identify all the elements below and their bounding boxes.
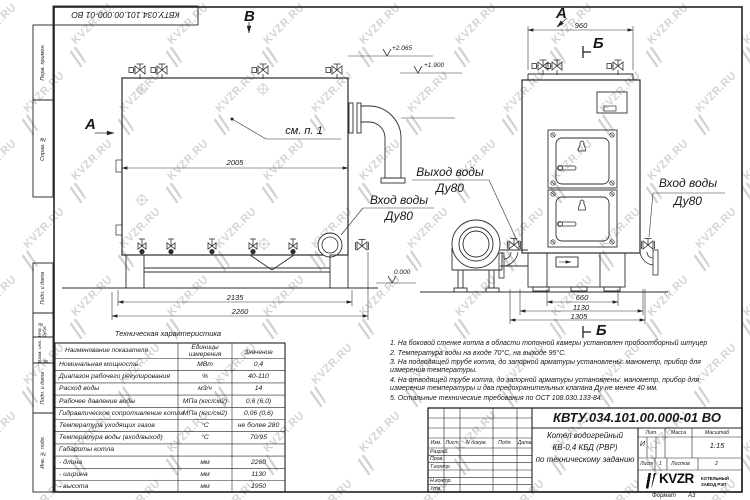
table-cell: мм [179,457,231,469]
tb-massa-label: Масса [665,430,692,436]
elevation-middle: +1.900 [424,62,444,69]
tb-lit-value: И [638,441,647,448]
kvzr-company-name-1: КОТЕЛЬНЫЙ [701,476,729,481]
kvzr-company-name-2: ЗАВОД РЭП [701,482,726,487]
dim-front-width: 2005 [215,158,255,167]
table-cell: 0,4 [233,359,284,371]
dim-side-base: 660 [567,293,597,302]
tech-col-header: Наименование показателя [65,347,177,354]
table-cell: МПа (кгс/см2) [179,408,231,420]
table-cell: - длина [59,457,177,469]
tb-row-razrab: Разраб. [430,449,449,455]
tb-col-data: Дата [517,440,532,446]
dim-side-top: 960 [565,21,597,30]
tech-table: Наименование показателя Единицы измерени… [55,343,285,492]
dim-side-mid: 1130 [565,303,597,312]
section-letter-v: В [244,8,255,25]
table-cell: 1950 [233,481,284,493]
elevation-top: +2.065 [392,45,412,52]
table-cell: Расход воды [59,383,177,395]
section-letter-b-top: Б [593,35,604,52]
tech-col-header: Единицы измерения [179,344,231,358]
tb-row-utv: Утв. [430,486,442,492]
dim-side-total: 1305 [563,312,595,321]
table-cell: % [179,371,231,383]
format-label: Формат [652,493,676,499]
table-cell: 40-110 [233,371,284,383]
table-cell: 70/95 [233,432,284,444]
table-cell: °С [179,432,231,444]
tb-row-prov: Пров. [430,456,444,462]
table-cell: Гидравлическое сопротивление котла [59,408,177,420]
notes: 1. На боковой стенке котла в области топ… [390,340,725,404]
tb-sheet-label: Лист [640,461,653,467]
table-cell: МВт [179,359,231,371]
note-item: 4. На отводящей трубе котла, до запорной… [390,377,725,393]
table-cell: 0,06 (0,6) [233,408,284,420]
dim-front-base: 2135 [215,293,255,302]
water-inlet-left-dn: Ду80 [362,209,436,223]
table-cell: Габариты котла [59,444,177,456]
tb-scale-label: Масштаб [692,430,742,436]
table-cell: Температура уходящих газов [59,420,177,432]
tb-sheets-value: 2 [715,461,718,467]
table-cell: Номинальная мощность [59,359,177,371]
table-cell: 2260 [233,457,284,469]
tech-col-header: Значение [233,347,284,359]
stamp-perv-primen: Перв. примен. [33,25,53,100]
corner-doc-number: КВТУ.034.101.00.000-01 ВО [53,6,198,25]
note-item: 1. На боковой стенке котла в области топ… [390,340,725,348]
table-cell: - ширина [59,469,177,481]
tb-sheets-label: Листов [671,461,690,467]
note-item: 5. Остальные технические требования по О… [390,395,725,403]
water-inlet-right-dn: Ду80 [650,194,726,208]
section-letter-a-right: А [556,5,567,22]
table-cell: °С [179,420,231,432]
table-cell: Диапазон рабочего регулирования [59,371,177,383]
format-value: А3 [688,493,695,499]
kvzr-logo-text: KVZR [659,471,694,486]
table-cell: - высота [59,481,177,493]
elevation-zero: 0.000 [394,269,410,276]
note-item: 2. Температура воды на входе 70°С, на вы… [390,350,725,358]
water-inlet-left-label: Вход воды [362,193,436,207]
title-block-name-1: Котел водогрейный [533,431,637,440]
table-cell: не более 280 [233,420,284,432]
tb-col-izm: Изм. [428,440,444,446]
see-note-callout: см. п. 1 [268,125,340,137]
tb-scale-value: 1:15 [692,441,742,450]
tb-col-ndoc: N докум. [460,440,493,446]
stamp-inv-podl: Инв. № подл. [33,413,53,492]
water-inlet-right-label: Вход воды [650,176,726,190]
tb-sheet-value: 1 [659,461,662,467]
stamp-sprav-no: Справ. № [33,100,53,197]
tb-row-tkontr: Т.контр. [430,464,451,470]
drawing-sheet: KVZR.RUKVZR.RUKVZR.RUKVZR.RUKVZR.RUKVZR.… [0,0,750,500]
table-cell: 0,6 (6,0) [233,396,284,408]
stamp-vzam-inv: Взам. инв. № [33,337,53,363]
stamp-podp-data-1: Подп. и дата [33,263,53,313]
tb-lit-label: Лит. [638,430,665,436]
table-cell: Температура воды (вход/выход) [59,432,177,444]
tech-table-title: Техническая характеристика [98,329,238,338]
tb-col-podp: Подп. [493,440,517,446]
boiler-front-view [62,64,455,298]
table-cell: МПа (кгс/см2) [179,396,231,408]
title-block-name-3: по техническому заданию [533,455,637,464]
title-block-number: КВТУ.034.101.00.000-01 ВО [533,410,741,425]
tb-row-nkontr: Н.контр. [430,478,452,484]
table-cell: мм [179,481,231,493]
title-block-name-2: КВ-0,4 КБД (РВР) [533,443,637,452]
section-letter-b-bottom: Б [596,322,607,339]
dim-front-total: 2260 [220,307,260,316]
section-letter-a-left: А [85,116,96,133]
tb-col-list: Лист [444,440,460,446]
table-cell: Рабочее давление воды [59,396,177,408]
table-cell: мм [179,469,231,481]
table-cell: 1130 [233,469,284,481]
table-cell: 14 [233,383,284,395]
stamp-inv-dubl: Инв. № дубл. [33,313,53,337]
note-item: 3. На подводящей трубе котла, до запорно… [390,359,725,375]
table-cell: м3/ч [179,383,231,395]
water-outlet-label: Выход воды [410,165,490,179]
stamp-podp-data-2: Подп. и дата [33,363,53,413]
